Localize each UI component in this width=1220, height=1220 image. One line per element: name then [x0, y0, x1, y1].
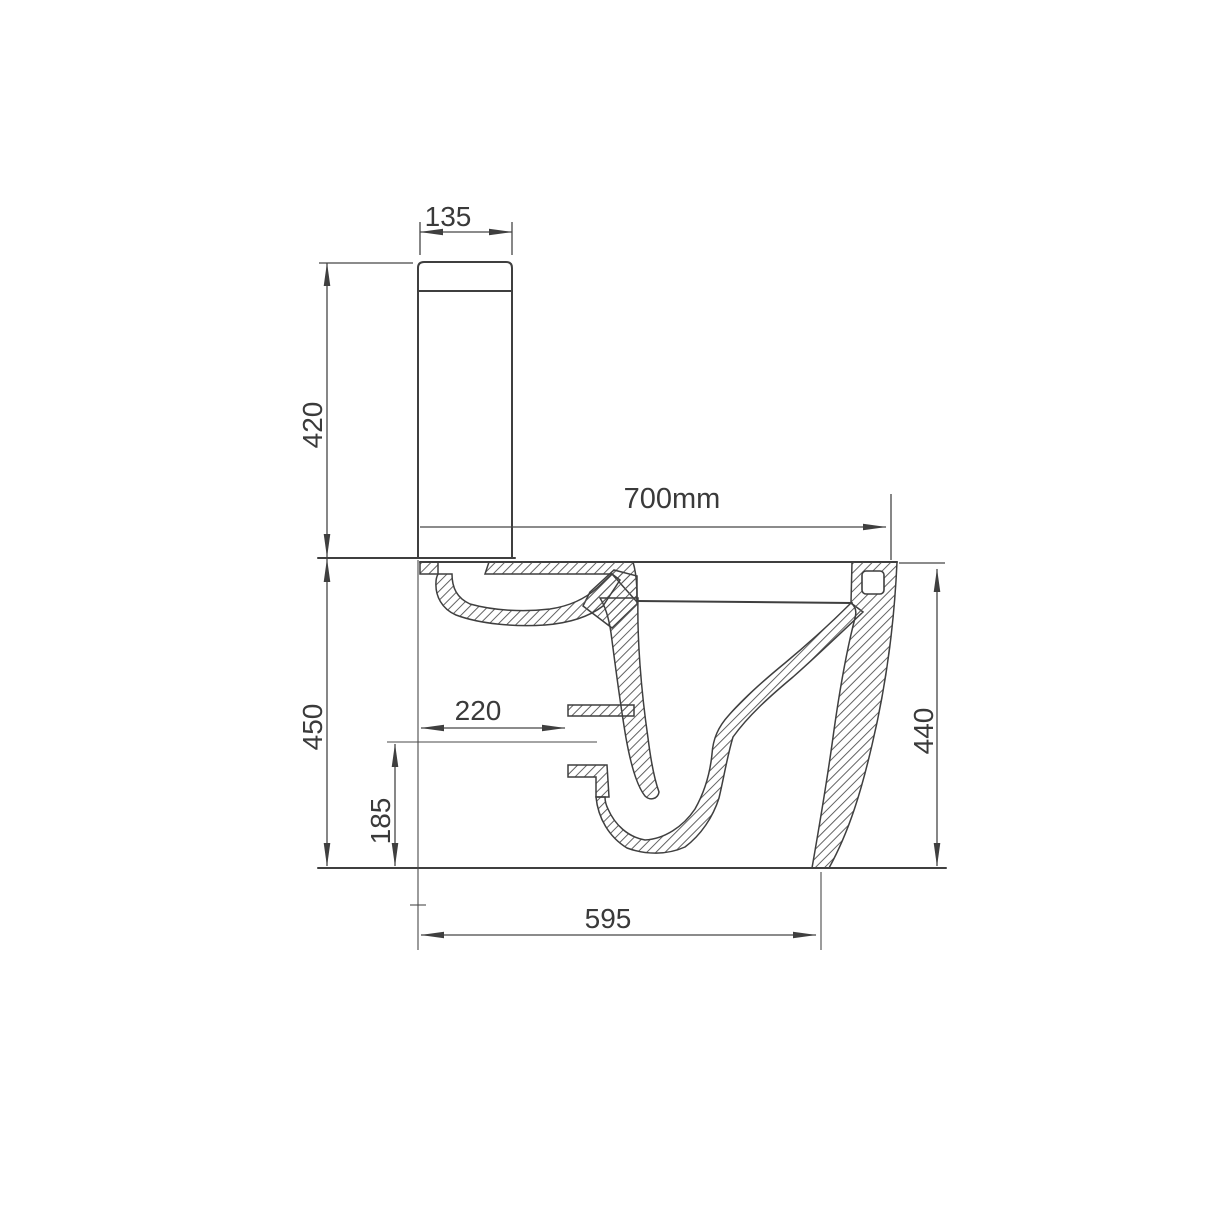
dimension-label-450: 450: [297, 704, 328, 751]
dimension-label-220: 220: [455, 695, 502, 726]
rim-inner-elevation-line: [637, 601, 852, 603]
dimension-rear-height: 440: [899, 563, 945, 866]
seat-fixing-hole: [862, 571, 884, 594]
bowl-front-floor-section: [436, 574, 620, 626]
technical-drawing-canvas: 135 420 450 700mm 220: [0, 0, 1220, 1220]
outlet-bottom-wall-section: [568, 765, 609, 797]
dimension-outlet-height: 185: [365, 744, 396, 866]
cistern-outline: [418, 262, 512, 557]
dimension-label-420: 420: [297, 402, 328, 449]
dimension-label-185: 185: [365, 798, 396, 845]
dimension-label-440: 440: [908, 708, 939, 755]
dimension-cistern-width: 135: [420, 201, 512, 255]
dimension-label-135: 135: [425, 201, 472, 232]
toilet-cross-section: [318, 262, 946, 868]
dimension-cistern-height: 420: [297, 263, 413, 557]
outlet-top-wall-section: [568, 705, 634, 716]
rim-front-section: [420, 562, 438, 574]
toilet-dimension-drawing: 135 420 450 700mm 220: [0, 0, 1220, 1220]
dimension-label-595: 595: [585, 903, 632, 934]
back-wall-section: [812, 562, 897, 868]
bowl-back-downpipe-section: [600, 598, 659, 799]
dimension-pan-height: 450: [297, 559, 328, 866]
dimension-outlet-setback: 220: [421, 695, 565, 728]
dimension-overall-depth: 700mm: [420, 483, 891, 560]
dimension-label-700mm: 700mm: [624, 483, 721, 515]
